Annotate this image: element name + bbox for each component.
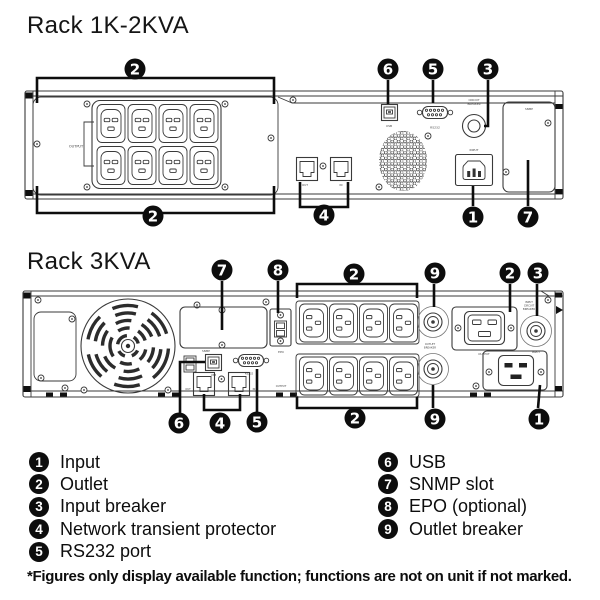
legend-column-right: 6 USB 7 SNMP slot 8 EPO (optional) 9 Out… [378,452,527,542]
rack2-input-socket [483,351,547,390]
svg-text:1: 1 [534,410,544,428]
rack2-snmp-slot: SNMP [180,307,267,353]
rack1-usb-label: USB [386,124,392,128]
rack1-rs232-port: RS232 [417,107,452,130]
svg-text:2: 2 [148,207,158,225]
rack2-usb-label: USB [211,373,217,377]
legend-num-5: 5 [29,542,49,562]
outlet-c13 [190,147,218,185]
svg-text:1: 1 [468,208,478,226]
svg-text:3: 3 [483,60,493,78]
legend-item-network-protector: 4 Network transient protector [29,519,276,539]
svg-text:2: 2 [349,265,359,283]
svg-text:4: 4 [215,414,225,432]
svg-text:9: 9 [430,264,440,282]
rack1-output-label: OUTPUT [69,145,84,149]
legend-label-input: Input [60,452,100,473]
outlet-c13 [360,304,388,342]
rack2-epo-label: EPO [278,350,284,354]
outlet-c13 [360,357,388,395]
rack1-circuit-breaker: CIRCUIT BREAKER [463,98,486,138]
rack1-chassis [25,91,563,199]
rack2-ob-label-2: BREAKER [424,346,436,350]
svg-text:6: 6 [174,414,184,432]
outlet-c13 [390,357,418,395]
legend-item-snmp: 7 SNMP slot [378,474,527,494]
rack2-usb-port: USB [184,355,222,378]
svg-text:2: 2 [350,409,360,427]
legend-item-epo: 8 EPO (optional) [378,497,527,517]
outlet-c13 [330,304,358,342]
outlet-c13 [97,105,125,143]
legend-item-input: 1 Input [29,452,276,472]
legend-label-usb: USB [409,452,446,473]
legend-label-rs232: RS232 port [60,541,151,562]
rack2-outlet-grid: OUTPUT [276,301,419,397]
ups-rear-panel-diagram-page: Rack 1K-2KVA Rack 3KVA [0,0,600,600]
rack1-net-in-label: IN [340,183,343,187]
rack1-breaker-label-2: BREAKER [467,102,480,106]
rack2-diagram: SNMP EPO OUTPUT [23,260,563,434]
rack2-net-out-label: OUT [185,387,191,391]
outlet-c13 [330,357,358,395]
outlet-c13 [300,357,328,395]
rack1-usb-port: USB [382,105,398,129]
legend-num-6: 6 [378,452,398,472]
outlet-c13 [128,105,156,143]
outlet-c13 [190,105,218,143]
legend-num-8: 8 [378,497,398,517]
legend-label-network-protector: Network transient protector [60,519,276,540]
rack1-diagram: OUTPUT USB RS232 CIRCUIT BREAKER OUT IN [25,59,563,228]
rack2-snmp-label: SNMP [202,349,210,353]
legend-column-left: 1 Input 2 Outlet 3 Input breaker 4 Netwo… [29,452,276,564]
legend-item-rs232: 5 RS232 port [29,542,276,562]
outlet-c13 [390,304,418,342]
rack1-outlet-grid: OUTPUT [69,101,221,189]
rack2-network-protector-ports: OUT IN [185,373,255,396]
legend-num-1: 1 [29,452,49,472]
rack2-ib-label-3: BREAKER [523,307,535,311]
rack2-fan [78,296,177,395]
legend-num-2: 2 [29,474,49,494]
legend-item-usb: 6 USB [378,452,527,472]
svg-text:7: 7 [523,208,533,226]
legend-label-outlet-breaker: Outlet breaker [409,519,523,540]
rack1-net-out-label: OUT [302,183,308,187]
svg-text:5: 5 [252,413,262,431]
svg-text:9: 9 [430,410,440,428]
svg-text:5: 5 [428,60,438,78]
legend-item-outlet-breaker: 9 Outlet breaker [378,519,527,539]
rj45-out-port [297,158,318,181]
svg-text:4: 4 [319,206,329,224]
legend-item-outlet: 2 Outlet [29,474,276,494]
rack2-blank-panel [34,312,76,381]
outlet-c13 [159,147,187,185]
outlet-c13 [159,105,187,143]
rack2-ob-label-1: OUTLET [425,342,436,346]
legend-num-7: 7 [378,474,398,494]
legend-item-input-breaker: 3 Input breaker [29,497,276,517]
rack2-callouts: 7 8 2 9 2 3 2 [169,260,550,434]
svg-text:8: 8 [273,261,283,279]
rack2-net-in-label: IN [253,387,256,391]
rack2-outlet-breaker-top: OUTLET BREAKER [418,307,449,350]
rack1-callouts: 2 2 6 5 3 4 1 [37,59,539,228]
svg-text:6: 6 [383,60,393,78]
svg-text:2: 2 [130,60,140,78]
footer-note: *Figures only display available function… [27,568,592,585]
rack1-network-protector-ports: OUT IN [297,158,352,188]
rj45-in-port [229,373,250,396]
legend-num-4: 4 [29,519,49,539]
outlet-c13 [128,147,156,185]
svg-text:2: 2 [505,264,515,282]
rack2-output-side-label: OUTPUT [276,384,287,388]
legend-num-3: 3 [29,497,49,517]
rj45-in-port [331,158,352,181]
outlet-c13 [300,304,328,342]
outlet-c13 [97,147,125,185]
rack2-epo-connector: EPO [270,309,291,354]
rack2-c19-outlet: OUTPUT [452,307,517,356]
rack1-input-socket: INPUT [456,148,493,186]
rack1-input-label: INPUT [470,148,479,152]
legend-label-snmp: SNMP slot [409,474,494,495]
rack1-rs232-label: RS232 [430,126,440,130]
legend-num-9: 9 [378,519,398,539]
legend-label-input-breaker: Input breaker [60,496,166,517]
svg-text:3: 3 [533,264,543,282]
rack2-outlet-breaker-bottom [418,354,449,385]
svg-text:7: 7 [217,261,227,279]
rack2-ib-label-1: INPUT [525,300,533,304]
fan-grille-dots [379,131,427,191]
legend-label-outlet: Outlet [60,474,108,495]
rack2-ib-label-2: CIRCUIT [524,304,535,308]
rack1-snmp-label: SNMP [525,107,533,111]
legend-label-epo: EPO (optional) [409,496,527,517]
